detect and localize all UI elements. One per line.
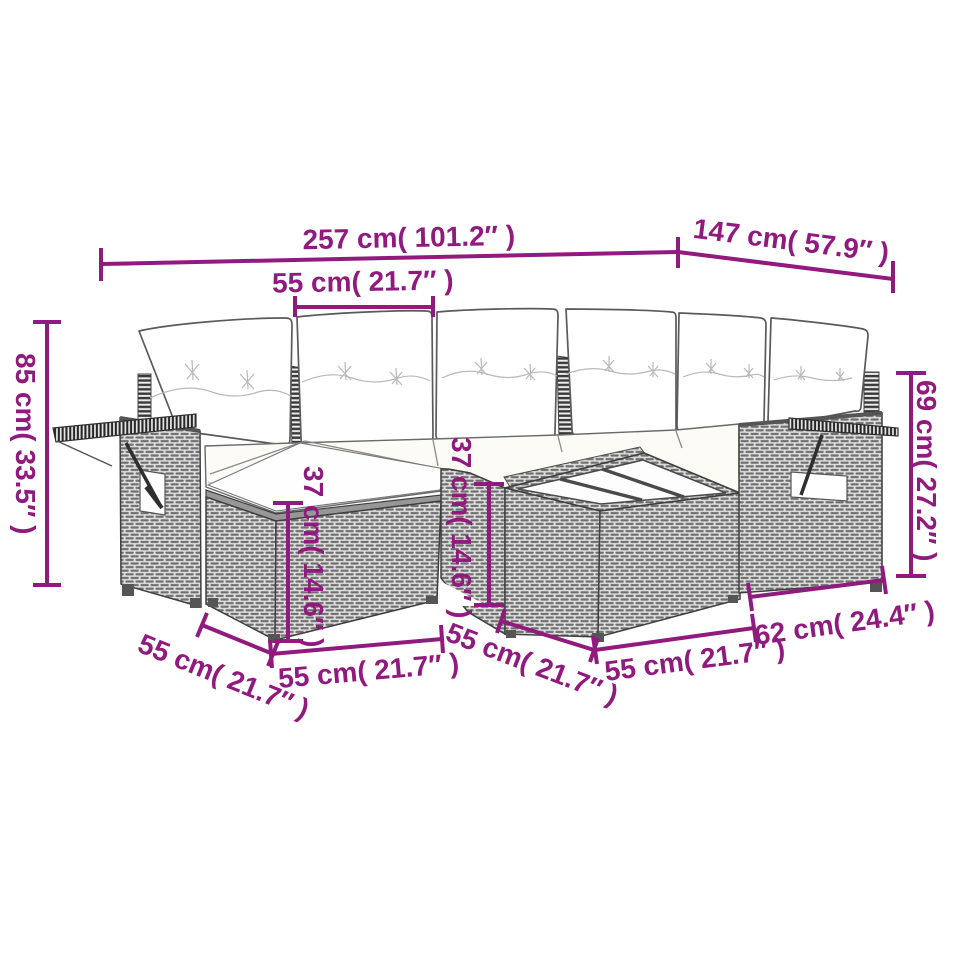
svg-text:55 cm( 21.7″ ): 55 cm( 21.7″ ) [272, 264, 454, 298]
svg-text:257 cm( 101.2″ ): 257 cm( 101.2″ ) [302, 220, 515, 255]
svg-text:37 cm( 14.6″ ): 37 cm( 14.6″ ) [298, 466, 329, 648]
svg-text:85 cm( 33.5″ ): 85 cm( 33.5″ ) [10, 353, 41, 535]
svg-text:37 cm( 14.6″ ): 37 cm( 14.6″ ) [446, 437, 477, 619]
svg-text:69 cm( 27.2″ ): 69 cm( 27.2″ ) [911, 380, 942, 562]
